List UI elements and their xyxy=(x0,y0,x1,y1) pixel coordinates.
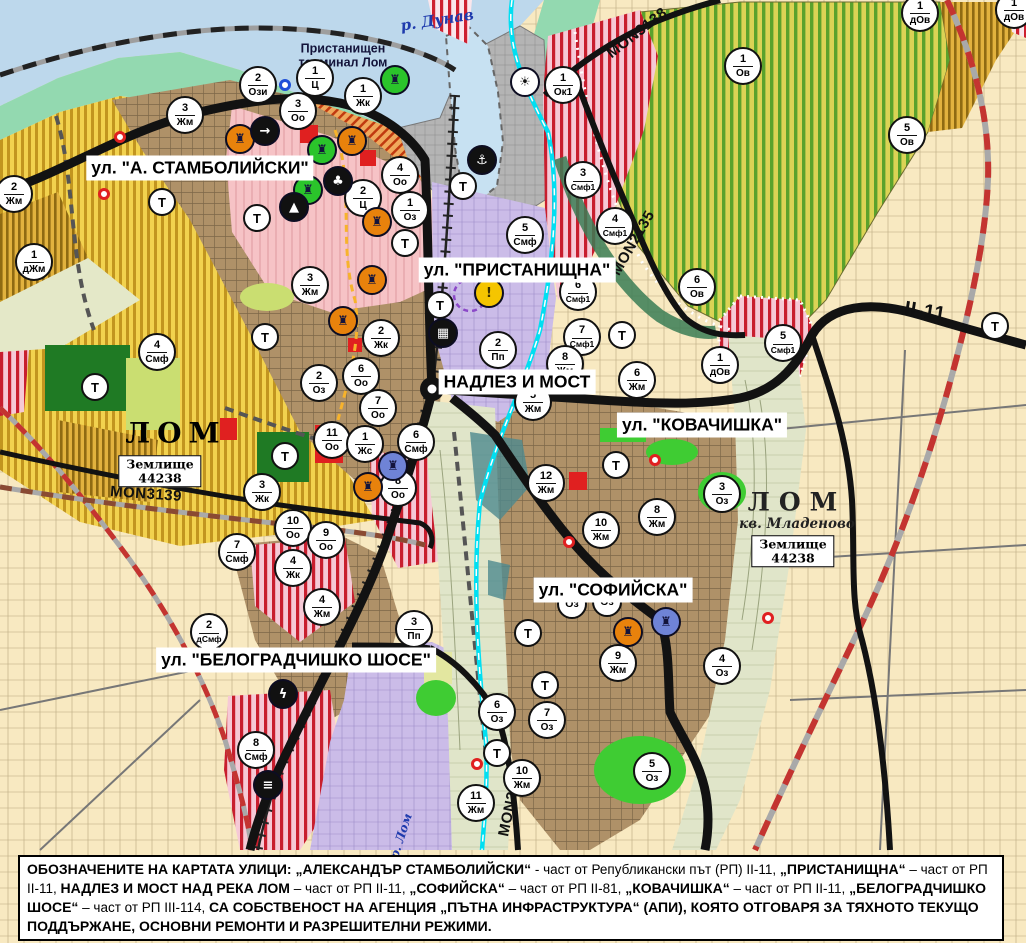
zone-marker-6-Оз: 6Оз xyxy=(478,693,516,731)
land-plot-box: Землище44238 xyxy=(118,455,201,487)
legend-text-segment: – част от РП II-11, xyxy=(730,881,849,896)
district-lom-label: ЛОМ xyxy=(748,488,847,517)
legend-text-segment: НАДЛЕЗ И МОСТ НАД РЕКА ЛОМ xyxy=(61,880,290,896)
zone-marker-3-Жм: 3Жм xyxy=(166,96,204,134)
monument-icon: ♜ xyxy=(380,65,410,95)
land-plot-box: Землище44238 xyxy=(751,535,834,567)
zone-marker-5-Ов: 5Ов xyxy=(888,116,926,154)
legend-text-segment: – част от РП II-11, xyxy=(290,881,409,896)
zone-marker-6-Жм: 6Жм xyxy=(618,361,656,399)
zone-marker-4-Оо: 4Оо xyxy=(381,156,419,194)
t-zone-marker: Т xyxy=(243,204,271,232)
zone-marker-11-Жм: 11Жм xyxy=(457,784,495,822)
t-zone-marker: Т xyxy=(81,373,109,401)
sun-icon: ☀ xyxy=(510,67,540,97)
t-zone-marker: Т xyxy=(483,739,511,767)
t-zone-marker: Т xyxy=(251,323,279,351)
street-label: ул. "БЕЛОГРАДЧИШКО ШОСЕ" xyxy=(156,648,436,673)
street-label: ул. "ПРИСТАНИЩНА" xyxy=(419,258,616,283)
zone-marker-10-Жм: 10Жм xyxy=(503,759,541,797)
lightning-icon: ϟ xyxy=(268,679,298,709)
t-zone-marker: Т xyxy=(426,291,454,319)
zone-marker-3-Пп: 3Пп xyxy=(395,610,433,648)
railway-station-icon: ≡ xyxy=(253,770,283,800)
zone-marker-2-дСмф: 2дСмф xyxy=(190,613,228,651)
legend-text-segment: „КОВАЧИШКА“ xyxy=(625,880,730,896)
zone-marker-7-Оо: 7Оо xyxy=(359,389,397,427)
legend-bar: ОБОЗНАЧЕНИТЕ НА КАРТАТА УЛИЦИ: „АЛЕКСАНД… xyxy=(18,855,1004,941)
t-zone-marker: Т xyxy=(531,671,559,699)
legend-text-segment: - част от Републикански път (РП) II-11, xyxy=(531,862,780,877)
tunnel-icon: ▲ xyxy=(279,192,309,222)
monument-icon: ♜ xyxy=(353,472,383,502)
zone-marker-5-Смф1: 5Смф1 xyxy=(764,324,802,362)
legend-text-segment: – част от РП III-114, xyxy=(78,900,209,915)
zone-marker-1-Жк: 1Жк xyxy=(344,77,382,115)
t-zone-marker: Т xyxy=(608,321,636,349)
zone-marker-1-дЖм: 1дЖм xyxy=(15,243,53,281)
zone-marker-4-Смф: 4Смф xyxy=(138,333,176,371)
legend-text-segment: – част от РП II-81, xyxy=(505,881,625,896)
warning-icon: ! xyxy=(474,278,504,308)
t-zone-marker: Т xyxy=(602,451,630,479)
t-zone-marker: Т xyxy=(148,188,176,216)
t-zone-marker: Т xyxy=(391,229,419,257)
zone-marker-6-Ов: 6Ов xyxy=(678,268,716,306)
club-icon: ♣ xyxy=(323,166,353,196)
street-label: ул. "А. СТАМБОЛИЙСКИ" xyxy=(86,156,313,181)
street-label: ул. "КОВАЧИШКА" xyxy=(617,413,787,438)
zone-marker-2-Пп: 2Пп xyxy=(479,331,517,369)
zone-marker-3-Жк: 3Жк xyxy=(243,473,281,511)
t-zone-marker: Т xyxy=(449,172,477,200)
zone-marker-3-Смф1: 3Смф1 xyxy=(564,161,602,199)
monument-icon: ♜ xyxy=(357,265,387,295)
city-lom-label: ЛОМ xyxy=(125,417,226,450)
zone-marker-4-Оз: 4Оз xyxy=(703,647,741,685)
zone-marker-5-Оз: 5Оз xyxy=(633,752,671,790)
zone-marker-7-Оз: 7Оз xyxy=(528,701,566,739)
street-label: ул. "СОФИЙСКА" xyxy=(534,578,693,603)
zone-marker-10-Жм: 10Жм xyxy=(582,511,620,549)
zone-marker-1-Оз: 1Оз xyxy=(391,191,429,229)
zone-marker-3-Оо: 3Оо xyxy=(279,92,317,130)
monument-icon: ♜ xyxy=(651,607,681,637)
zone-marker-8-Жм: 8Жм xyxy=(638,498,676,536)
point-marker xyxy=(471,758,483,770)
point-marker xyxy=(762,612,774,624)
zone-marker-2-Ози: 2Ози xyxy=(239,66,277,104)
zone-marker-3-Жм: 3Жм xyxy=(291,266,329,304)
point-marker xyxy=(649,454,661,466)
point-marker xyxy=(563,536,575,548)
t-zone-marker: Т xyxy=(514,619,542,647)
zone-marker-2-Оз: 2Оз xyxy=(300,364,338,402)
zone-marker-1-дОв: 1дОв xyxy=(701,346,739,384)
street-label: НАДЛЕЗ И МОСТ xyxy=(439,370,596,395)
zone-marker-4-Жм: 4Жм xyxy=(303,588,341,626)
t-zone-marker: Т xyxy=(981,312,1009,340)
t-zone-marker: Т xyxy=(271,442,299,470)
zone-marker-2-Жк: 2Жк xyxy=(362,319,400,357)
zone-marker-9-Жм: 9Жм xyxy=(599,644,637,682)
monument-icon: ♜ xyxy=(337,126,367,156)
zone-marker-1-Ок1: 1Ок1 xyxy=(544,66,582,104)
monument-icon: ♜ xyxy=(378,451,408,481)
anchor-icon: ⚓ xyxy=(467,145,497,175)
legend-text-segment: „СОФИЙСКА“ xyxy=(409,880,505,896)
legend-text-segment: „ПРИСТАНИЩНА“ xyxy=(780,861,906,877)
monument-icon: ♜ xyxy=(613,617,643,647)
zone-marker-12-Жм: 12Жм xyxy=(527,464,565,502)
zoning-map: р. Дунав р. Лом Пристанищен терминал Лом… xyxy=(0,0,1026,943)
zone-marker-9-Оо: 9Оо xyxy=(307,521,345,559)
legend-text-segment: ОБОЗНАЧЕНИТЕ НА КАРТАТА УЛИЦИ: „АЛЕКСАНД… xyxy=(27,861,531,877)
zone-marker-1-Ц: 1Ц xyxy=(296,59,334,97)
zone-marker-8-Смф: 8Смф xyxy=(237,731,275,769)
zone-marker-3-Оз: 3Оз xyxy=(703,475,741,513)
zone-marker-5-Смф: 5Смф xyxy=(506,216,544,254)
monument-icon: ♜ xyxy=(362,207,392,237)
zone-marker-7-Смф: 7Смф xyxy=(218,533,256,571)
zone-marker-4-Смф1: 4Смф1 xyxy=(596,207,634,245)
point-marker xyxy=(279,79,291,91)
zone-marker-1-Жс: 1Жс xyxy=(346,425,384,463)
circle-arrow-icon: → xyxy=(250,116,280,146)
monument-icon: ♜ xyxy=(328,306,358,336)
district-mladenovo-label: кв. Младеново xyxy=(739,516,855,532)
point-marker xyxy=(114,131,126,143)
zone-marker-1-Ов: 1Ов xyxy=(724,47,762,85)
bus-icon: ▦ xyxy=(428,318,458,348)
point-marker xyxy=(98,188,110,200)
zone-marker-4-Жк: 4Жк xyxy=(274,549,312,587)
